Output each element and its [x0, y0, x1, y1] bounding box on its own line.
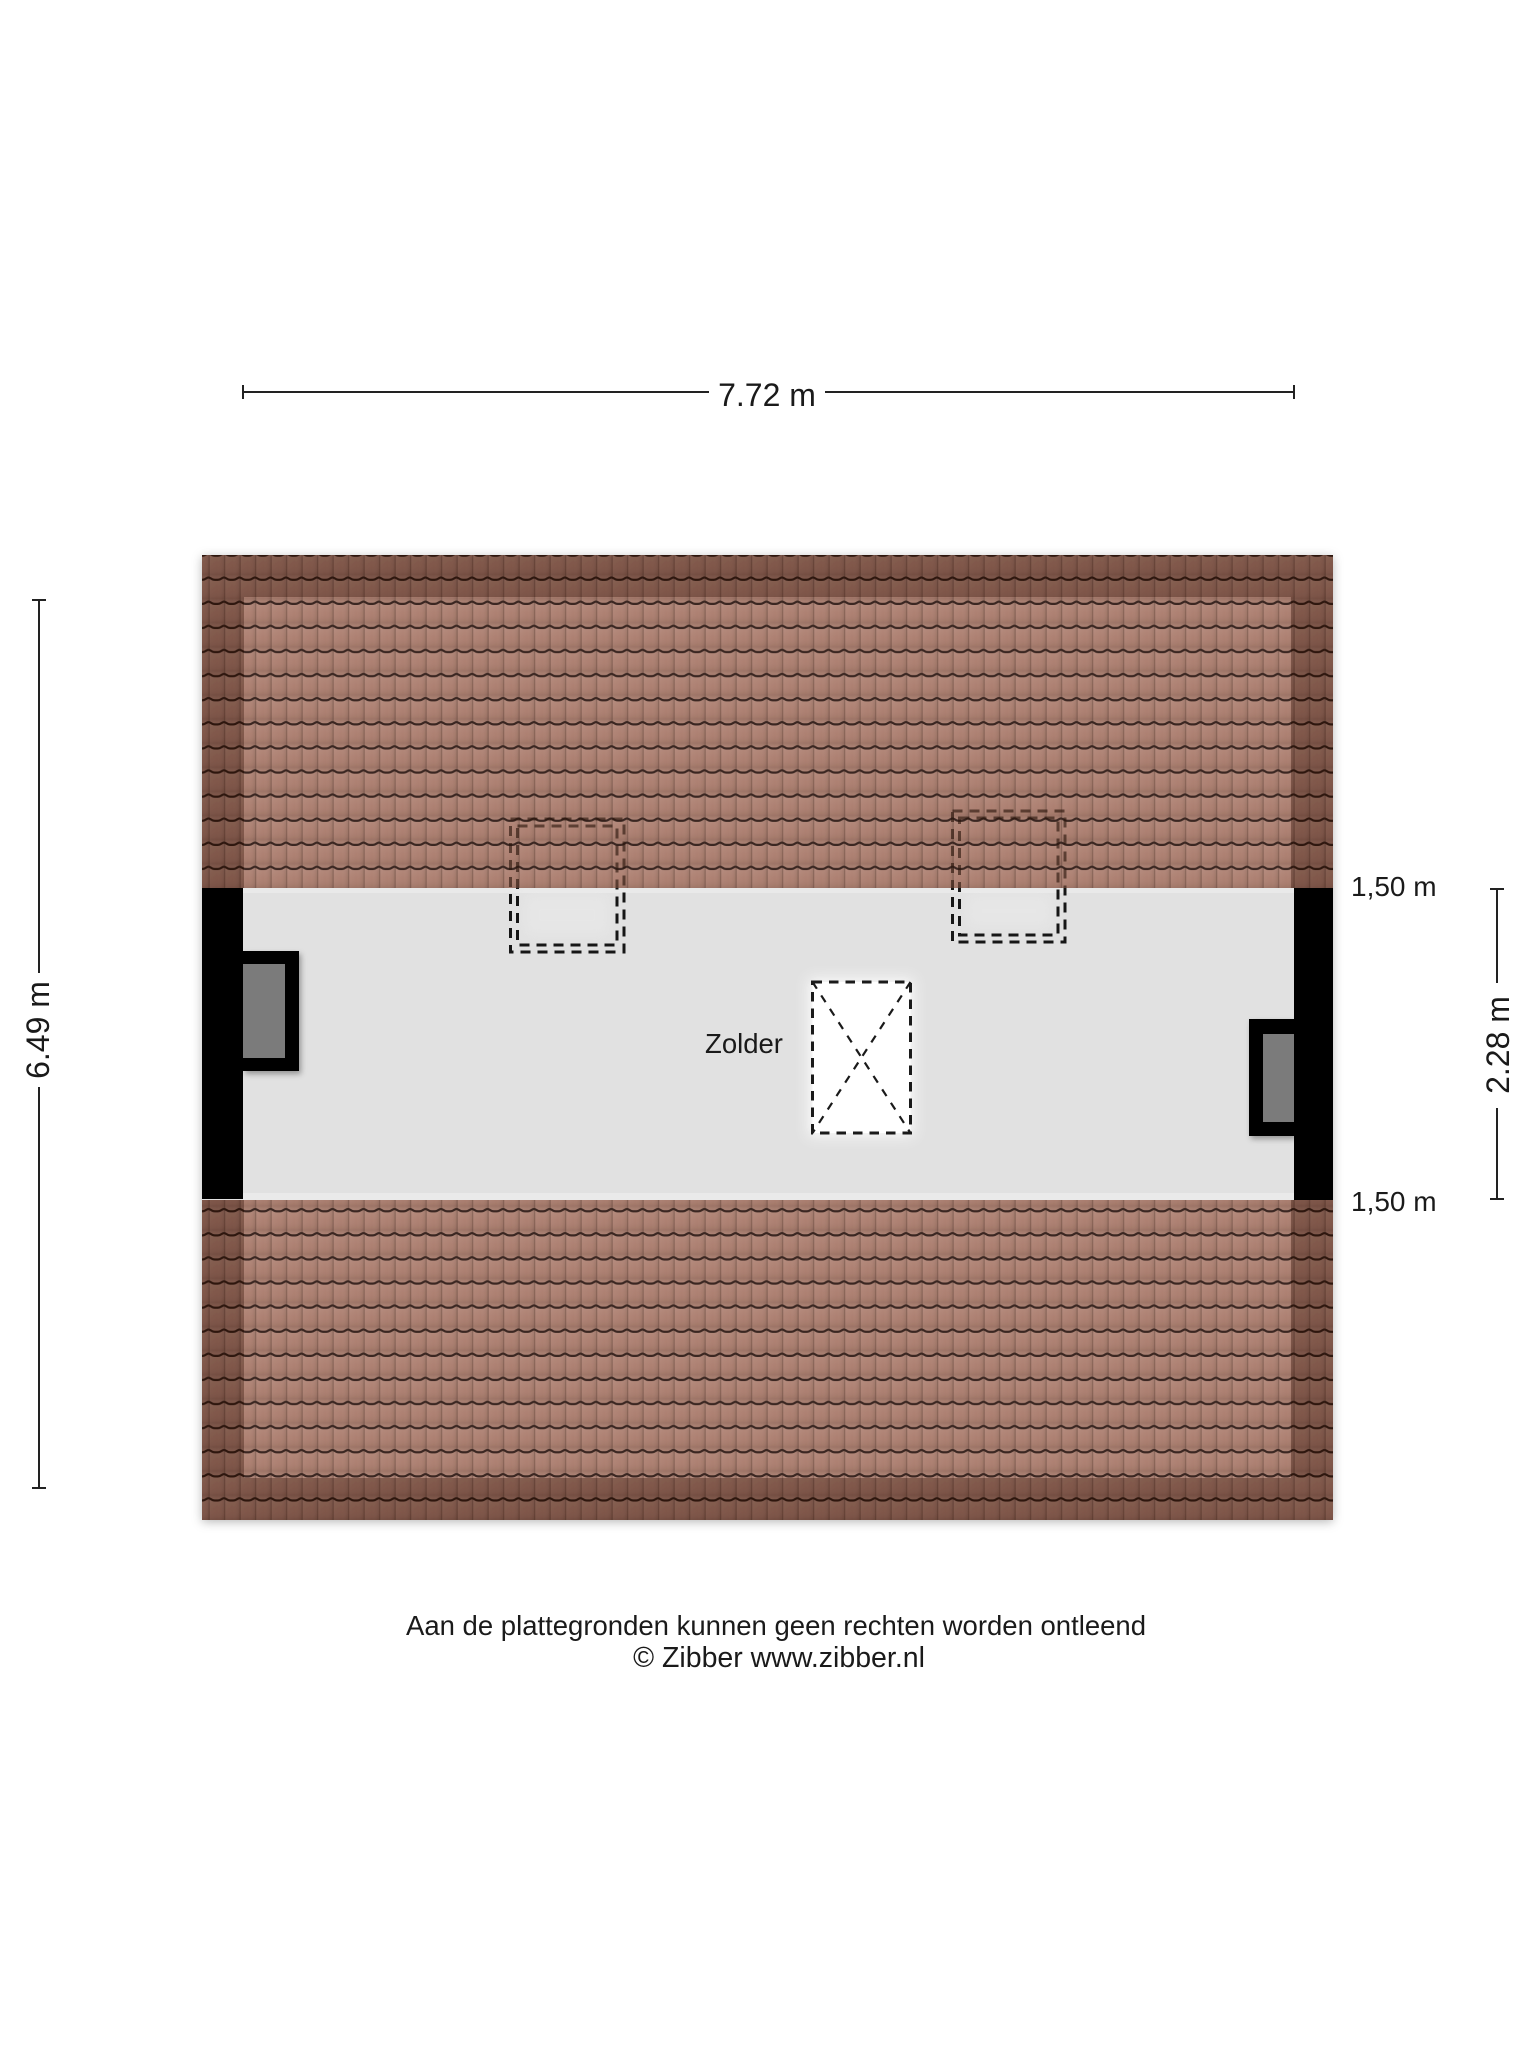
- svg-text:Zolder: Zolder: [705, 1028, 783, 1059]
- svg-text:1,50 m: 1,50 m: [1351, 1186, 1437, 1217]
- svg-text:Aan de plattegronden kunnen ge: Aan de plattegronden kunnen geen rechten…: [406, 1610, 1146, 1641]
- svg-text:1,50 m: 1,50 m: [1351, 871, 1437, 902]
- svg-text:7.72 m: 7.72 m: [718, 377, 816, 413]
- svg-text:6.49 m: 6.49 m: [20, 981, 56, 1079]
- svg-text:2.28 m: 2.28 m: [1480, 996, 1516, 1094]
- svg-text:© Zibber www.zibber.nl: © Zibber www.zibber.nl: [633, 1642, 925, 1674]
